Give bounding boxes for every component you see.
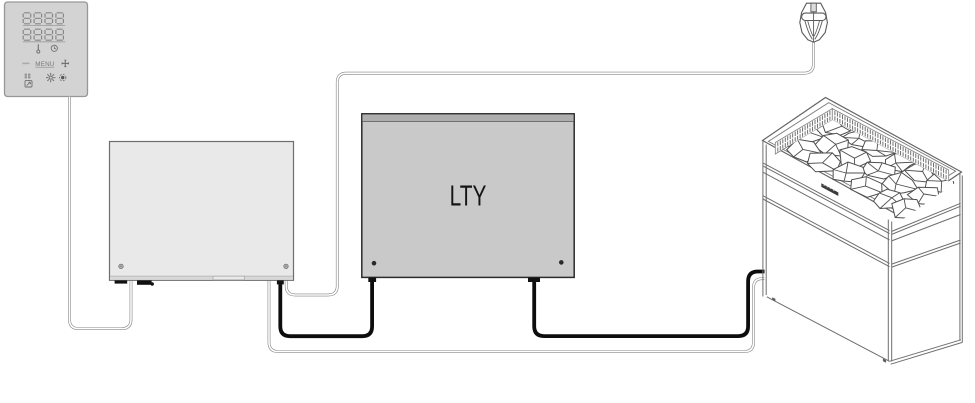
svg-text:LTY: LTY xyxy=(450,180,487,212)
